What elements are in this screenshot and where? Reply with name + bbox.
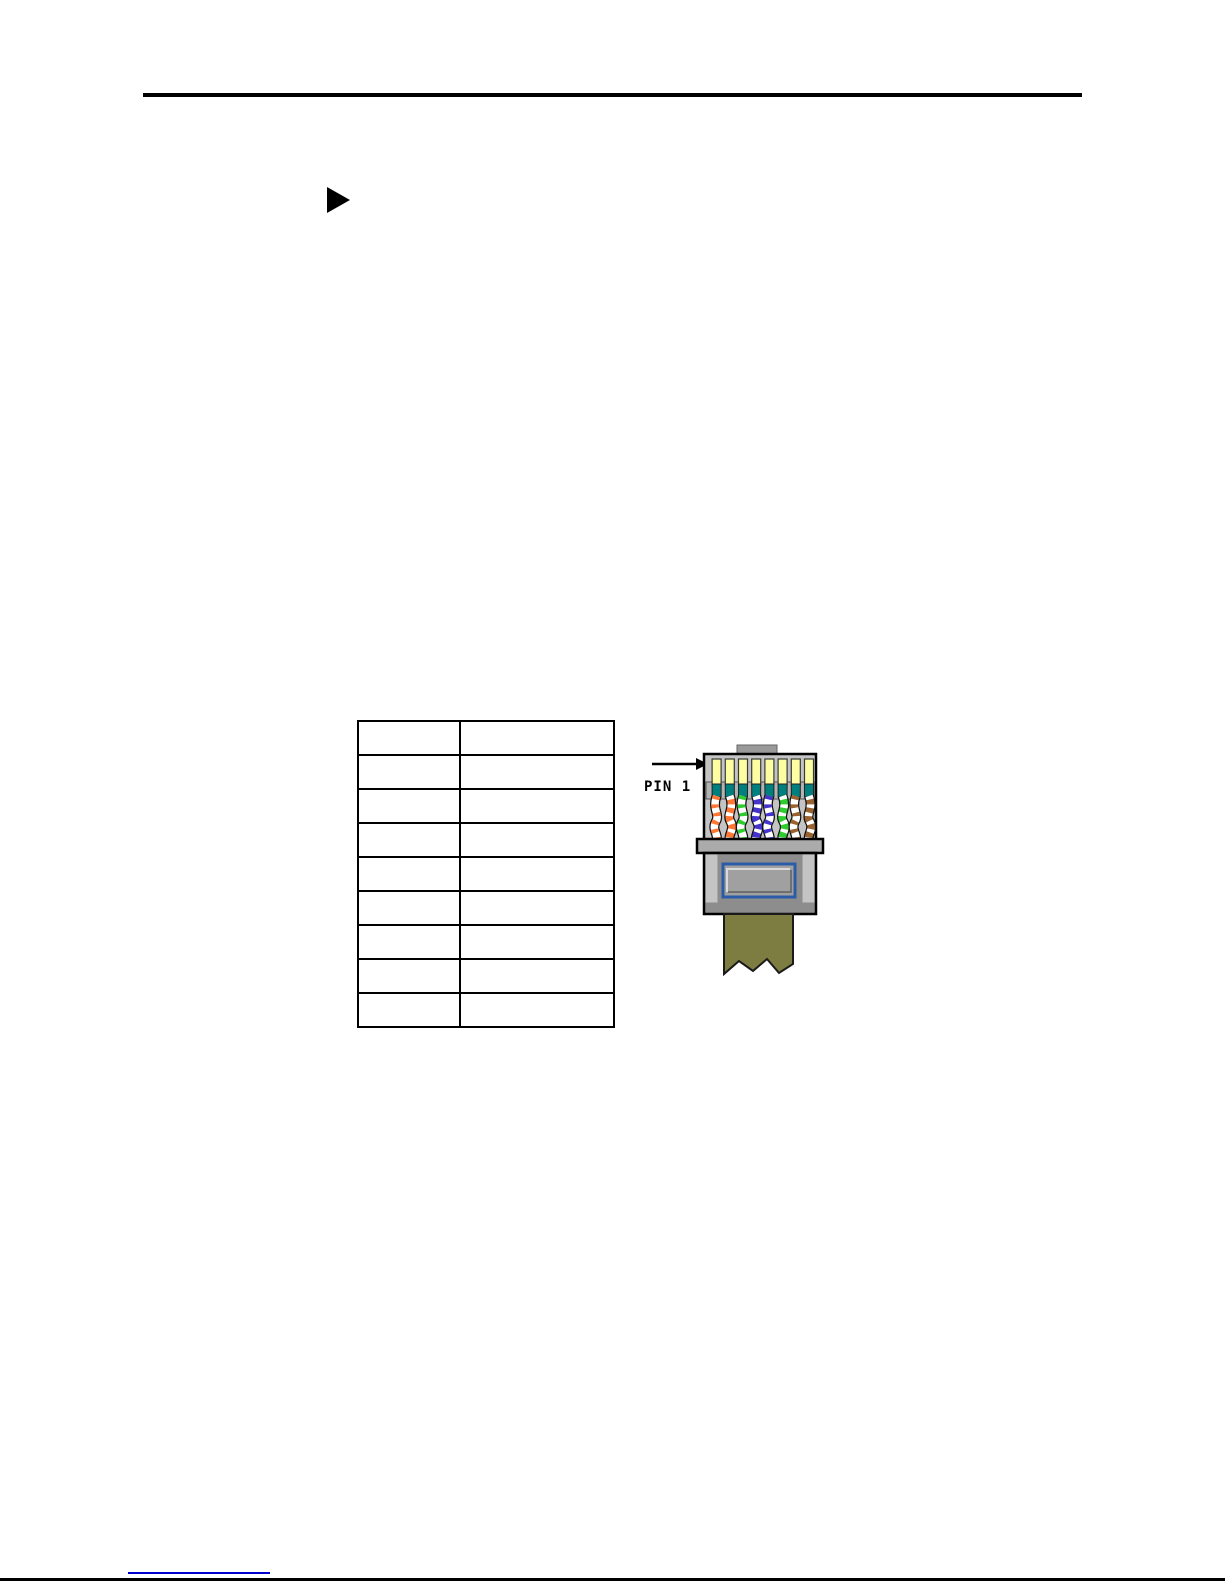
pin-table-cell	[460, 993, 614, 1027]
pin-table-row	[358, 925, 614, 959]
page-bottom-rule	[0, 1578, 1225, 1581]
pin-table-cell	[460, 823, 614, 857]
footer-link-underline	[128, 1572, 270, 1574]
connector-flange	[697, 839, 823, 853]
connector-pin	[725, 759, 734, 785]
pin-table-row	[358, 721, 614, 755]
cable	[724, 914, 793, 974]
wire-stroke	[756, 796, 759, 841]
connector-pin	[765, 759, 774, 785]
pin-table-cell	[358, 891, 460, 925]
rj45-connector-svg: PIN 1	[640, 740, 825, 990]
wire-white-brown	[794, 796, 797, 841]
pin-table-row	[358, 755, 614, 789]
pin1-arrow-icon	[652, 758, 708, 770]
wire-orange	[729, 796, 732, 841]
pin-table-row	[358, 959, 614, 993]
pin-table-cell	[460, 789, 614, 823]
rj45-connector-figure: PIN 1	[640, 740, 825, 990]
connector-pin	[739, 759, 748, 785]
header-rule	[143, 93, 1082, 97]
pin-table-cell	[460, 925, 614, 959]
connector-pin	[712, 759, 721, 785]
wire-brown	[808, 796, 811, 841]
connector-pin	[778, 759, 787, 785]
wire-white-orange	[714, 796, 717, 841]
pin-table-cell	[358, 789, 460, 823]
list-bullet-triangle-icon	[327, 187, 350, 213]
pin-table-cell	[460, 755, 614, 789]
pin-table-cell	[358, 721, 460, 755]
connector-latch-window	[723, 864, 795, 897]
pin-table-cell	[358, 823, 460, 857]
pin-table-row	[358, 789, 614, 823]
pin-table-cell	[460, 721, 614, 755]
pin-table-cell	[358, 959, 460, 993]
pin-table-cell	[460, 891, 614, 925]
wire-white-green	[741, 796, 744, 841]
pin-table-row	[358, 993, 614, 1027]
wire-white-blue	[767, 796, 770, 841]
wire-stroke	[782, 796, 785, 841]
connector-pin	[805, 759, 814, 785]
pin-table-row	[358, 823, 614, 857]
pin-table-cell	[358, 857, 460, 891]
connector-lower-body-left-strip	[706, 855, 718, 903]
document-page: PIN 1	[0, 0, 1225, 1585]
pin-table-body	[358, 721, 614, 1027]
wire-green	[782, 796, 785, 841]
pin-table-cell	[460, 959, 614, 993]
footer-link[interactable]	[128, 1572, 270, 1575]
pin1-label: PIN 1	[644, 779, 691, 795]
pin-table-cell	[358, 993, 460, 1027]
wire-stroke	[714, 796, 717, 841]
pinout-table	[357, 720, 615, 1028]
pin-table-row	[358, 857, 614, 891]
connector-pin	[791, 759, 800, 785]
pin-table-cell	[460, 857, 614, 891]
wire-stroke	[741, 796, 744, 841]
wire-stroke	[729, 796, 732, 841]
pin-table-cell	[358, 755, 460, 789]
wire-stroke	[808, 796, 811, 841]
connector-pin	[752, 759, 761, 785]
wire-stroke	[767, 796, 770, 841]
pin-table-row	[358, 891, 614, 925]
connector-lower-body-right-strip	[803, 855, 815, 903]
wire-stroke	[794, 796, 797, 841]
wire-blue	[756, 796, 759, 841]
pin-table-cell	[358, 925, 460, 959]
